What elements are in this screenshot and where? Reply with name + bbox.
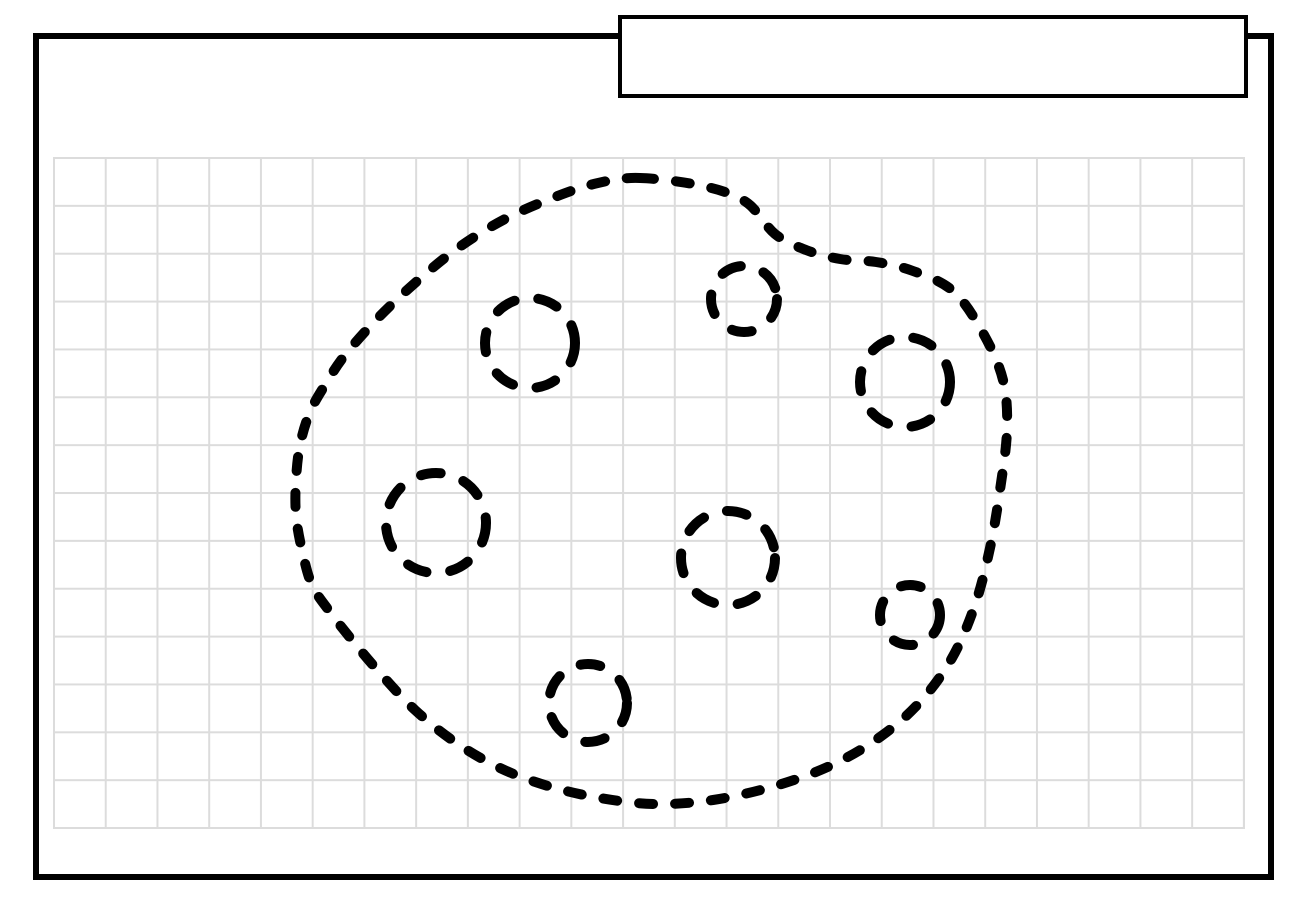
- worksheet-page: [0, 0, 1300, 900]
- chip-circle: [880, 585, 940, 645]
- chip-circle: [549, 664, 627, 742]
- title-tab[interactable]: [618, 15, 1248, 98]
- chip-circle: [386, 473, 486, 573]
- chip-circle: [860, 337, 950, 427]
- chip-circle: [681, 511, 775, 605]
- chip-circle: [485, 298, 575, 388]
- chip-circle: [711, 266, 777, 332]
- drawing-canvas[interactable]: [0, 0, 1300, 900]
- chip-circles: [386, 266, 950, 742]
